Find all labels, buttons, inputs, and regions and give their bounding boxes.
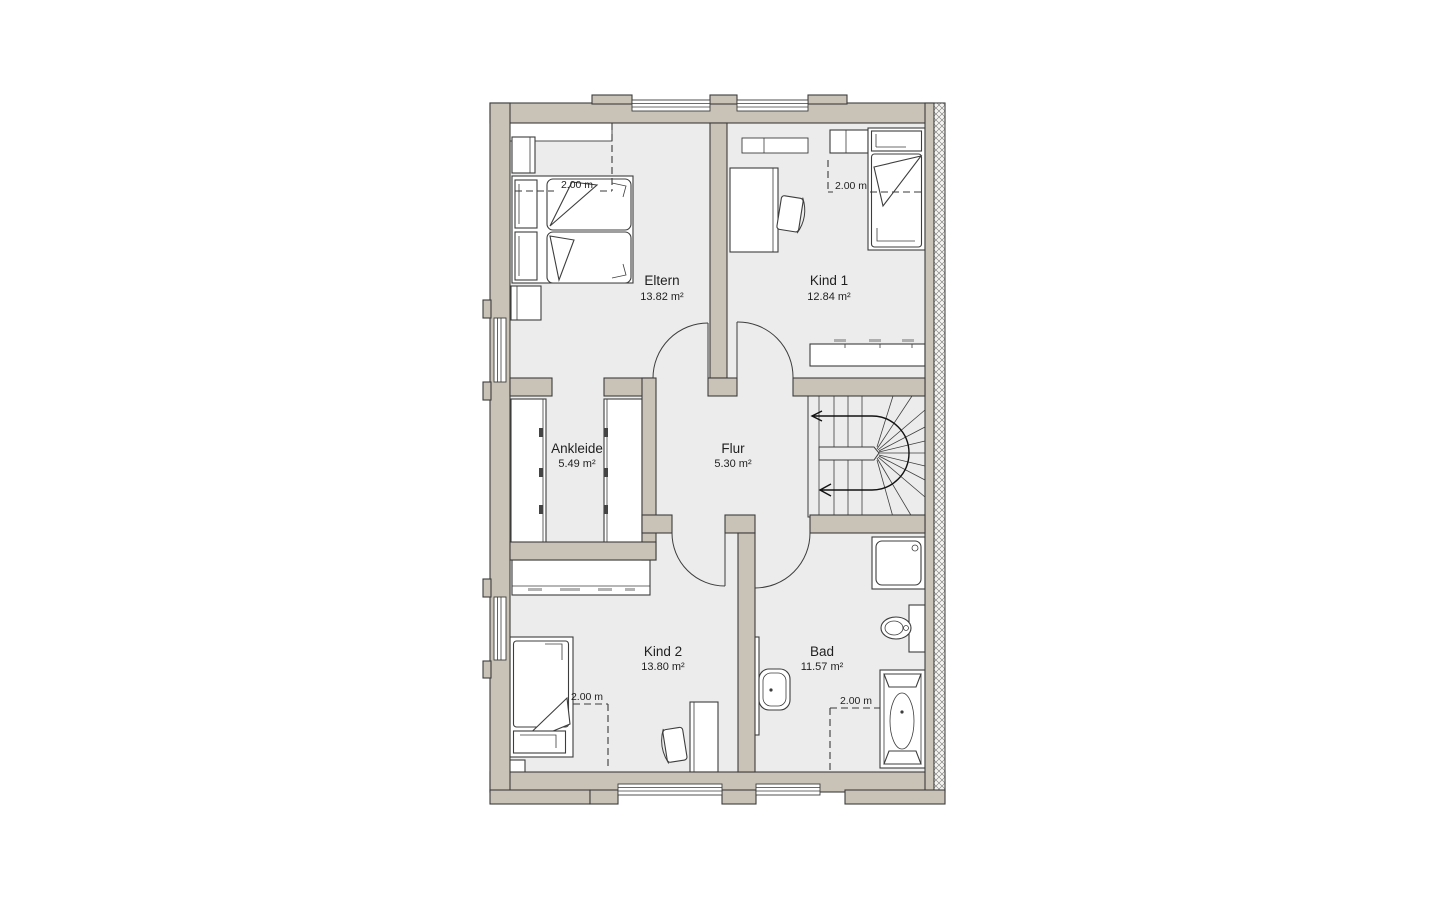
- window-top-kind1: [737, 100, 808, 111]
- room-label-kind1-area: 12.84 m²: [807, 291, 851, 303]
- wall-party-hatch: [934, 103, 945, 792]
- room-label-flur-area: 5.30 m²: [714, 458, 752, 470]
- eltern-double-bed: [512, 176, 633, 283]
- dimension-label-eltern: 2.00 m: [561, 179, 593, 191]
- bad-shower: [872, 537, 925, 589]
- ankleide-wardrobe-right: [604, 399, 642, 543]
- window-left-kind2: [494, 597, 506, 660]
- window-bottom-kind2: [618, 784, 722, 795]
- wall-eltern-kind1: [710, 123, 727, 378]
- window-left-eltern: [494, 318, 506, 382]
- kind1-bed: [868, 128, 925, 250]
- room-label-eltern-area: 13.82 m²: [640, 291, 684, 303]
- room-label-kind2-name: Kind 2: [644, 644, 682, 659]
- room-label-flur-name: Flur: [721, 441, 745, 456]
- window-bottom-bad: [756, 784, 820, 795]
- dimension-label-bad: 2.00 m: [840, 695, 872, 707]
- room-label-kind1-name: Kind 1: [810, 273, 848, 288]
- eltern-wardrobe-top: [512, 137, 535, 173]
- ankleide-wardrobe-left: [511, 399, 546, 543]
- eltern-wardrobe-bottom: [511, 286, 541, 320]
- kind1-desk: [730, 168, 778, 252]
- dimension-label-kind2: 2.00 m: [571, 691, 603, 703]
- room-label-ankleide-area: 5.49 m²: [558, 458, 596, 470]
- wall-party-inner: [925, 103, 934, 792]
- floor-plan-page: 2.00 m 2.00 m 2.00 m 2.00 m Eltern 13.82…: [0, 0, 1440, 900]
- window-top-eltern: [632, 100, 710, 111]
- kind2-desk: [690, 702, 718, 772]
- kind2-cabinet-top: [512, 560, 650, 595]
- dimension-label-kind1: 2.00 m: [835, 180, 867, 192]
- kind1-wall-shelf: [742, 138, 808, 153]
- kind2-bed: [510, 637, 573, 757]
- room-label-kind2-area: 13.80 m²: [641, 661, 685, 673]
- wall-ankleide-kind2: [510, 542, 656, 560]
- room-label-ankleide-name: Ankleide: [551, 441, 603, 456]
- room-label-bad-name: Bad: [810, 644, 834, 659]
- room-label-bad-area: 11.57 m²: [801, 661, 844, 673]
- wall-left: [490, 103, 510, 792]
- room-label-eltern-name: Eltern: [644, 273, 679, 288]
- bad-bathtub: [880, 670, 925, 768]
- kind1-sideboard-top: [830, 130, 868, 153]
- wall-kind2-bad: [738, 533, 755, 772]
- floor-plan-drawing: 2.00 m 2.00 m 2.00 m 2.00 m Eltern 13.82…: [0, 0, 1440, 900]
- wall-top: [490, 103, 945, 123]
